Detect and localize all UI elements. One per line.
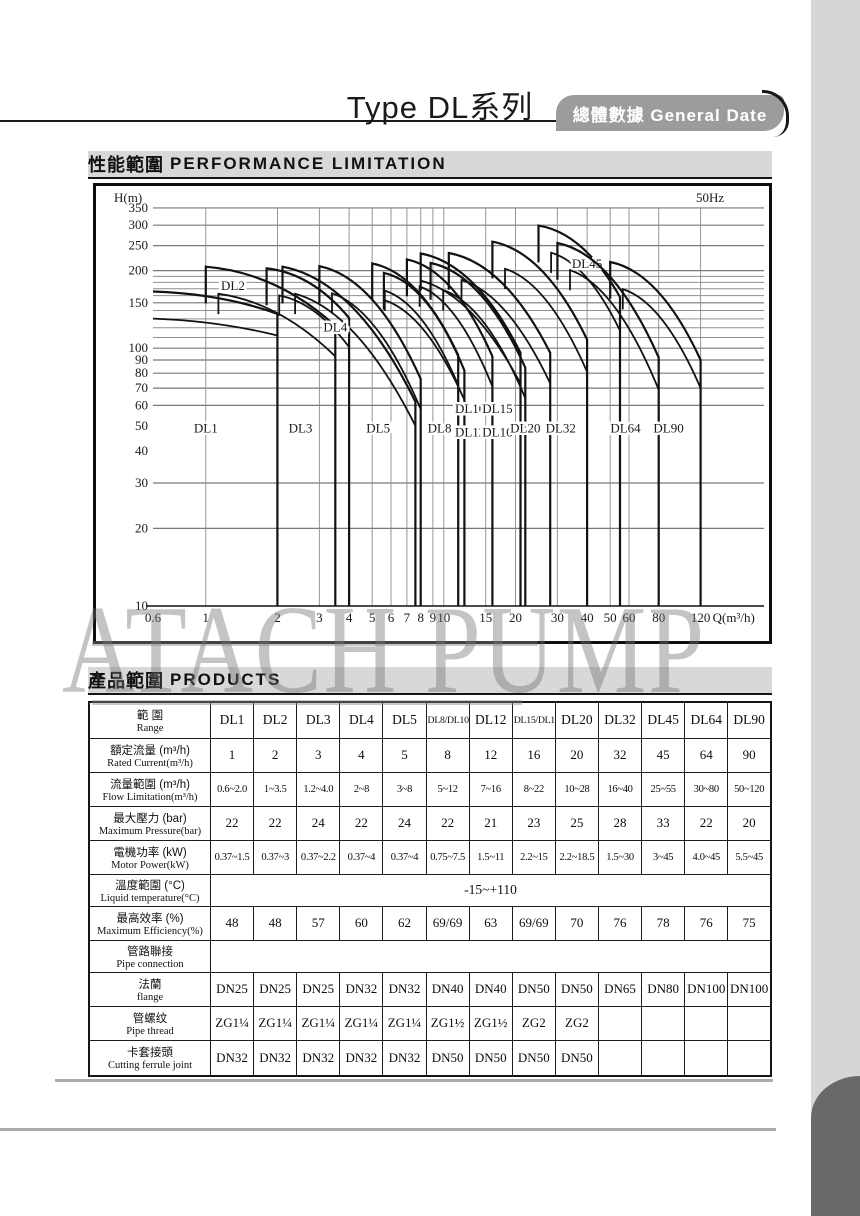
table-cell: 8 bbox=[426, 738, 469, 772]
curve-dl10-lower bbox=[384, 300, 465, 400]
table-row: 電機功率 (kW)Motor Power(kW)0.37~1.50.37~30.… bbox=[89, 840, 771, 874]
table-cell: 22 bbox=[211, 806, 254, 840]
row-label-en: Pipe thread bbox=[91, 1026, 209, 1037]
table-cell: 8~22 bbox=[512, 772, 555, 806]
frequency-label: 50Hz bbox=[696, 190, 724, 205]
curve-label-dl2: DL2 bbox=[221, 278, 245, 293]
table-cell: 30~80 bbox=[685, 772, 728, 806]
table-cell: 76 bbox=[598, 906, 641, 940]
x-tick-10: 10 bbox=[437, 610, 450, 625]
catalog-page: Type DL系列 總體數據 General Date 性能範圍 PERFORM… bbox=[0, 0, 860, 1216]
table-cell: 3 bbox=[297, 738, 340, 772]
products-table: 範 圍RangeDL1DL2DL3DL4DL5DL8/DL10DL12DL15/… bbox=[88, 701, 772, 1077]
table-cell: DL3 bbox=[297, 702, 340, 738]
table-cell: 2 bbox=[254, 738, 297, 772]
table-cell: DN32 bbox=[254, 1040, 297, 1076]
table-cell: 4.0~45 bbox=[685, 840, 728, 874]
row-label-en: flange bbox=[91, 992, 209, 1003]
table-cell: 22 bbox=[254, 806, 297, 840]
x-tick-0.6: 0.6 bbox=[145, 610, 162, 625]
curve-label-dl20: DL20 bbox=[510, 421, 540, 436]
row-label: 管螺纹Pipe thread bbox=[89, 1006, 211, 1040]
row-label: 額定流量 (m³/h)Rated Current(m³/h) bbox=[89, 738, 211, 772]
table-cell: DN32 bbox=[211, 1040, 254, 1076]
footer-line-1 bbox=[55, 1079, 773, 1082]
table-cell: 69/69 bbox=[426, 906, 469, 940]
y-tick-50: 50 bbox=[135, 418, 148, 433]
table-cell: 24 bbox=[383, 806, 426, 840]
table-cell: DN65 bbox=[598, 972, 641, 1006]
table-cell: DN40 bbox=[426, 972, 469, 1006]
table-cell: DN100 bbox=[685, 972, 728, 1006]
table-row: 溫度範圍 (°C)Liquid temperature(°C)-15~+110 bbox=[89, 874, 771, 906]
curve-label-dl5: DL5 bbox=[366, 421, 390, 436]
table-cell: DN32 bbox=[383, 972, 426, 1006]
row-label-zh: 管路聯接 bbox=[91, 943, 209, 959]
table-row: 管路聯接Pipe connection bbox=[89, 940, 771, 972]
row-label-zh: 卡套接頭 bbox=[91, 1044, 209, 1060]
y-tick-60: 60 bbox=[135, 397, 148, 412]
curve-label-dl16: DL16 bbox=[482, 424, 513, 439]
table-cell: 24 bbox=[297, 806, 340, 840]
table-cell: 63 bbox=[469, 906, 512, 940]
x-tick-9: 9 bbox=[430, 610, 437, 625]
table-cell: 28 bbox=[598, 806, 641, 840]
row-label-en: Motor Power(kW) bbox=[91, 860, 209, 871]
curve-label-dl64: DL64 bbox=[610, 421, 641, 436]
table-cell: 23 bbox=[512, 806, 555, 840]
table-cell: 0.37~1.5 bbox=[211, 840, 254, 874]
x-tick-5: 5 bbox=[369, 610, 376, 625]
curve-label-dl12: DL12 bbox=[455, 424, 485, 439]
table-cell: DL90 bbox=[728, 702, 771, 738]
x-tick-7: 7 bbox=[404, 610, 411, 625]
table-cell: 21 bbox=[469, 806, 512, 840]
y-tick-300: 300 bbox=[129, 217, 149, 232]
curve-label-dl3: DL3 bbox=[289, 421, 313, 436]
x-tick-120: 120 bbox=[691, 610, 711, 625]
x-tick-2: 2 bbox=[274, 610, 281, 625]
table-cell: 1.5~30 bbox=[598, 840, 641, 874]
curve-dl32-lower bbox=[505, 269, 587, 372]
curve-label-dl4: DL4 bbox=[323, 320, 347, 335]
table-row: 最大壓力 (bar)Maximum Pressure(bar)222224222… bbox=[89, 806, 771, 840]
table-cell: DN25 bbox=[297, 972, 340, 1006]
table-cell: DN50 bbox=[555, 972, 598, 1006]
table-cell: 70 bbox=[555, 906, 598, 940]
table-cell: DN32 bbox=[340, 972, 383, 1006]
x-tick-1: 1 bbox=[203, 610, 210, 625]
table-cell bbox=[598, 1040, 641, 1076]
y-tick-40: 40 bbox=[135, 443, 148, 458]
table-cell: 16~40 bbox=[598, 772, 641, 806]
table-cell: 3~8 bbox=[383, 772, 426, 806]
table-cell: ZG1½ bbox=[469, 1006, 512, 1040]
table-cell: DN50 bbox=[512, 972, 555, 1006]
table-cell: 32 bbox=[598, 738, 641, 772]
table-row: 管螺纹Pipe threadZG1¼ZG1¼ZG1¼ZG1¼ZG1¼ZG1½ZG… bbox=[89, 1006, 771, 1040]
curve-dl12-lower bbox=[420, 287, 493, 387]
table-cell: ZG1¼ bbox=[383, 1006, 426, 1040]
table-cell: 1.2~4.0 bbox=[297, 772, 340, 806]
row-label-en: Pipe connection bbox=[91, 959, 209, 970]
row-label-en: Flow Limitation(m³/h) bbox=[91, 792, 209, 803]
table-cell: 5~12 bbox=[426, 772, 469, 806]
row-label-en: Cutting ferrule joint bbox=[91, 1060, 209, 1071]
products-title-en: PRODUCTS bbox=[170, 670, 281, 690]
y-tick-70: 70 bbox=[135, 380, 148, 395]
right-margin-band-dark bbox=[811, 1076, 860, 1216]
table-cell: 75 bbox=[728, 906, 771, 940]
row-label-zh: 管螺纹 bbox=[91, 1010, 209, 1026]
table-cell: 45 bbox=[642, 738, 685, 772]
table-cell: 20 bbox=[728, 806, 771, 840]
x-tick-15: 15 bbox=[479, 610, 492, 625]
table-cell: 57 bbox=[297, 906, 340, 940]
row-label: 法蘭flange bbox=[89, 972, 211, 1006]
table-cell: 0.37~4 bbox=[340, 840, 383, 874]
table-cell: 10~28 bbox=[555, 772, 598, 806]
x-tick-4: 4 bbox=[346, 610, 353, 625]
table-cell: 48 bbox=[211, 906, 254, 940]
y-tick-20: 20 bbox=[135, 520, 148, 535]
table-cell: DL1 bbox=[211, 702, 254, 738]
table-cell: DN25 bbox=[254, 972, 297, 1006]
performance-chart-svg: H(m)350300250200150100908070605040302010… bbox=[96, 186, 769, 641]
x-tick-20: 20 bbox=[509, 610, 522, 625]
table-cell: 2~8 bbox=[340, 772, 383, 806]
table-cell: ZG1¼ bbox=[340, 1006, 383, 1040]
footer-line-2 bbox=[0, 1128, 776, 1131]
row-label: 最高效率 (%)Maximum Efficiency(%) bbox=[89, 906, 211, 940]
x-tick-50: 50 bbox=[604, 610, 617, 625]
performance-title-zh: 性能範圍 bbox=[88, 151, 164, 177]
y-tick-200: 200 bbox=[129, 263, 149, 278]
x-tick-3: 3 bbox=[316, 610, 323, 625]
header-tab: 總體數據 General Date bbox=[556, 95, 784, 131]
row-label-en: Maximum Pressure(bar) bbox=[91, 826, 209, 837]
table-cell: DN100 bbox=[728, 972, 771, 1006]
y-tick-80: 80 bbox=[135, 365, 148, 380]
table-cell: 0.37~3 bbox=[254, 840, 297, 874]
table-cell: ZG1½ bbox=[426, 1006, 469, 1040]
table-cell: DL45 bbox=[642, 702, 685, 738]
row-label-zh: 額定流量 (m³/h) bbox=[91, 742, 209, 758]
table-cell: 5 bbox=[383, 738, 426, 772]
row-label: 電機功率 (kW)Motor Power(kW) bbox=[89, 840, 211, 874]
performance-chart: H(m)350300250200150100908070605040302010… bbox=[93, 183, 772, 644]
table-row: 流量範圍 (m³/h)Flow Limitation(m³/h)0.6~2.01… bbox=[89, 772, 771, 806]
table-cell: ZG1¼ bbox=[211, 1006, 254, 1040]
table-cell: 5.5~45 bbox=[728, 840, 771, 874]
y-tick-250: 250 bbox=[129, 238, 149, 253]
table-cell: 48 bbox=[254, 906, 297, 940]
row-label: 範 圍Range bbox=[89, 702, 211, 738]
table-cell: ZG2 bbox=[512, 1006, 555, 1040]
table-cell: 0.37~2.2 bbox=[297, 840, 340, 874]
right-margin-band-light bbox=[811, 0, 860, 1140]
table-cell: 12 bbox=[469, 738, 512, 772]
table-cell: DN50 bbox=[555, 1040, 598, 1076]
x-axis-label: Q(m³/h) bbox=[713, 610, 755, 625]
table-cell: 1 bbox=[211, 738, 254, 772]
table-cell: DN32 bbox=[297, 1040, 340, 1076]
products-table-wrap: 範 圍RangeDL1DL2DL3DL4DL5DL8/DL10DL12DL15/… bbox=[88, 701, 772, 1077]
row-label: 流量範圍 (m³/h)Flow Limitation(m³/h) bbox=[89, 772, 211, 806]
x-tick-6: 6 bbox=[388, 610, 395, 625]
merged-cell bbox=[211, 940, 772, 972]
table-cell: 1~3.5 bbox=[254, 772, 297, 806]
performance-title-en: PERFORMANCE LIMITATION bbox=[170, 154, 447, 174]
row-label: 最大壓力 (bar)Maximum Pressure(bar) bbox=[89, 806, 211, 840]
merged-cell: -15~+110 bbox=[211, 874, 772, 906]
row-label-zh: 最大壓力 (bar) bbox=[91, 810, 209, 826]
table-cell: DL32 bbox=[598, 702, 641, 738]
y-tick-350: 350 bbox=[129, 200, 149, 215]
table-cell bbox=[728, 1006, 771, 1040]
table-cell: DL2 bbox=[254, 702, 297, 738]
x-tick-30: 30 bbox=[551, 610, 564, 625]
table-cell bbox=[685, 1006, 728, 1040]
table-cell: DN40 bbox=[469, 972, 512, 1006]
table-cell: 62 bbox=[383, 906, 426, 940]
table-cell: 0.6~2.0 bbox=[211, 772, 254, 806]
table-cell: 0.75~7.5 bbox=[426, 840, 469, 874]
table-cell: 2.2~18.5 bbox=[555, 840, 598, 874]
curve-dl1-upper bbox=[153, 292, 277, 607]
table-row: 法蘭flangeDN25DN25DN25DN32DN32DN40DN40DN50… bbox=[89, 972, 771, 1006]
table-cell: 25 bbox=[555, 806, 598, 840]
table-cell bbox=[685, 1040, 728, 1076]
curve-label-dl10: DL10 bbox=[455, 401, 485, 416]
y-tick-30: 30 bbox=[135, 475, 148, 490]
table-cell: 60 bbox=[340, 906, 383, 940]
table-cell: ZG1¼ bbox=[254, 1006, 297, 1040]
table-cell: 0.37~4 bbox=[383, 840, 426, 874]
table-cell: DL4 bbox=[340, 702, 383, 738]
x-tick-60: 60 bbox=[623, 610, 636, 625]
table-cell: DN50 bbox=[512, 1040, 555, 1076]
table-cell: 16 bbox=[512, 738, 555, 772]
table-cell: DL64 bbox=[685, 702, 728, 738]
header-tab-label: 總體數據 General Date bbox=[573, 101, 768, 126]
row-label-zh: 範 圍 bbox=[91, 707, 209, 723]
table-cell: 2.2~15 bbox=[512, 840, 555, 874]
table-cell: 7~16 bbox=[469, 772, 512, 806]
curve-dl1-lower bbox=[153, 319, 277, 336]
section-bar-performance: 性能範圍 PERFORMANCE LIMITATION bbox=[88, 151, 772, 179]
table-row: 最高效率 (%)Maximum Efficiency(%)48485760626… bbox=[89, 906, 771, 940]
table-row: 額定流量 (m³/h)Rated Current(m³/h)1234581216… bbox=[89, 738, 771, 772]
table-cell: 1.5~11 bbox=[469, 840, 512, 874]
table-cell: DL12 bbox=[469, 702, 512, 738]
table-row: 卡套接頭Cutting ferrule jointDN32DN32DN32DN3… bbox=[89, 1040, 771, 1076]
row-label: 管路聯接Pipe connection bbox=[89, 940, 211, 972]
table-cell: 64 bbox=[685, 738, 728, 772]
table-cell: 20 bbox=[555, 738, 598, 772]
table-cell: DN50 bbox=[426, 1040, 469, 1076]
curve-label-dl15: DL15 bbox=[482, 401, 512, 416]
row-label-zh: 溫度範圍 (°C) bbox=[91, 877, 209, 893]
table-cell: DN80 bbox=[642, 972, 685, 1006]
table-cell: ZG1¼ bbox=[297, 1006, 340, 1040]
table-cell: 3~45 bbox=[642, 840, 685, 874]
row-label-en: Rated Current(m³/h) bbox=[91, 758, 209, 769]
row-label: 卡套接頭Cutting ferrule joint bbox=[89, 1040, 211, 1076]
curve-label-dl8: DL8 bbox=[428, 421, 452, 436]
table-cell: DL15/DL16 bbox=[512, 702, 555, 738]
table-cell: 76 bbox=[685, 906, 728, 940]
table-cell: DL5 bbox=[383, 702, 426, 738]
x-tick-40: 40 bbox=[581, 610, 594, 625]
curve-label-dl1: DL1 bbox=[194, 421, 218, 436]
row-label-zh: 最高效率 (%) bbox=[91, 910, 209, 926]
table-cell: 22 bbox=[685, 806, 728, 840]
row-label-en: Liquid temperature(°C) bbox=[91, 893, 209, 904]
table-cell: DL8/DL10 bbox=[426, 702, 469, 738]
table-cell: 33 bbox=[642, 806, 685, 840]
table-cell bbox=[642, 1006, 685, 1040]
table-cell: 78 bbox=[642, 906, 685, 940]
table-cell bbox=[598, 1006, 641, 1040]
table-cell: ZG2 bbox=[555, 1006, 598, 1040]
tab-swoosh-decoration bbox=[762, 90, 789, 137]
y-tick-150: 150 bbox=[129, 295, 149, 310]
table-cell: 22 bbox=[340, 806, 383, 840]
header-rule bbox=[0, 120, 558, 122]
table-cell: 50~120 bbox=[728, 772, 771, 806]
x-tick-80: 80 bbox=[652, 610, 665, 625]
x-tick-8: 8 bbox=[417, 610, 424, 625]
table-cell bbox=[642, 1040, 685, 1076]
curve-label-dl32: DL32 bbox=[546, 421, 576, 436]
products-title-zh: 產品範圍 bbox=[88, 667, 164, 693]
row-label-zh: 電機功率 (kW) bbox=[91, 844, 209, 860]
row-label-zh: 流量範圍 (m³/h) bbox=[91, 776, 209, 792]
curve-dl2-upper bbox=[206, 267, 335, 606]
table-cell: 90 bbox=[728, 738, 771, 772]
table-cell: 25~55 bbox=[642, 772, 685, 806]
table-cell: DN32 bbox=[383, 1040, 426, 1076]
table-cell: 69/69 bbox=[512, 906, 555, 940]
table-cell bbox=[728, 1040, 771, 1076]
row-label-en: Range bbox=[91, 723, 209, 734]
table-cell: DN50 bbox=[469, 1040, 512, 1076]
row-label: 溫度範圍 (°C)Liquid temperature(°C) bbox=[89, 874, 211, 906]
table-cell: DN32 bbox=[340, 1040, 383, 1076]
row-label-en: Maximum Efficiency(%) bbox=[91, 926, 209, 937]
row-label-zh: 法蘭 bbox=[91, 976, 209, 992]
curve-label-dl90: DL90 bbox=[653, 421, 683, 436]
table-cell: DL20 bbox=[555, 702, 598, 738]
table-row: 範 圍RangeDL1DL2DL3DL4DL5DL8/DL10DL12DL15/… bbox=[89, 702, 771, 738]
section-bar-products: 產品範圍 PRODUCTS bbox=[88, 667, 772, 695]
table-cell: 4 bbox=[340, 738, 383, 772]
table-cell: DN25 bbox=[211, 972, 254, 1006]
table-cell: 22 bbox=[426, 806, 469, 840]
